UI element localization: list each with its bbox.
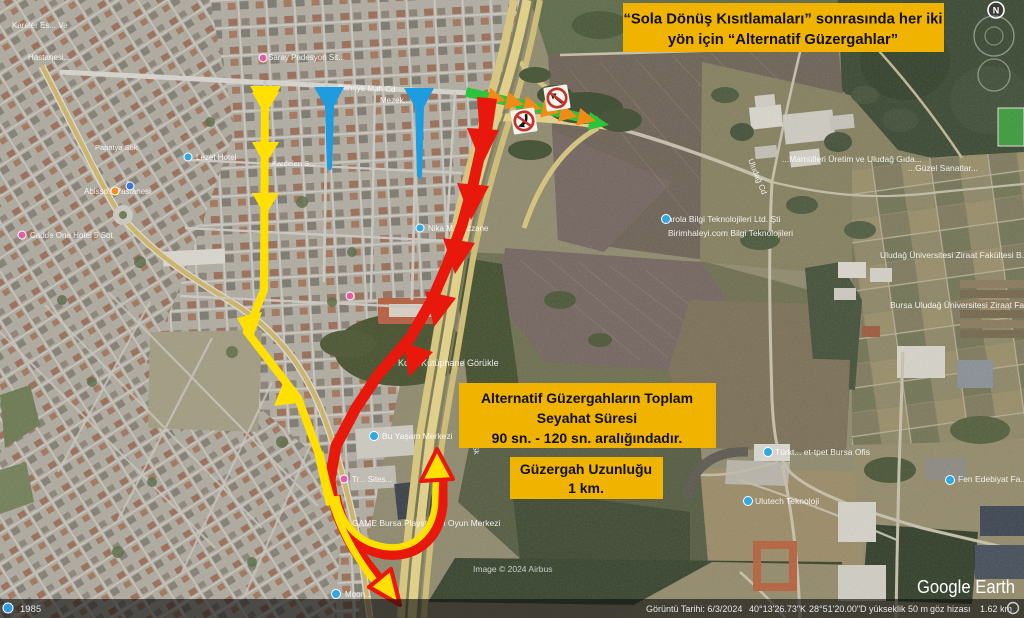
svg-text:Türkt... et-tpet Bursa Ofis: Türkt... et-tpet Bursa Ofis <box>775 447 870 457</box>
svg-text:Fen Edebiyat Fa...: Fen Edebiyat Fa... <box>958 474 1024 484</box>
svg-text:Mezek...: Mezek... <box>380 96 410 105</box>
svg-text:Lezet Hotel: Lezet Hotel <box>196 153 237 162</box>
svg-text:Hastanesi...: Hastanesi... <box>28 53 70 62</box>
svg-text:50 m: 50 m <box>908 604 928 614</box>
svg-text:...Güzel Sanatlar...: ...Güzel Sanatlar... <box>908 163 978 173</box>
svg-text:Google Earth: Google Earth <box>917 576 1015 597</box>
svg-text:yükseklik: yükseklik <box>869 604 906 614</box>
svg-text:1985: 1985 <box>20 604 41 615</box>
svg-text:“Sola Dönüş Kısıtlamaları” son: “Sola Dönüş Kısıtlamaları” sonrasında he… <box>623 12 942 28</box>
svg-text:Bu Yaşam Merkezi: Bu Yaşam Merkezi <box>382 431 453 441</box>
svg-text:Moon...: Moon... <box>345 590 372 599</box>
svg-text:Image © 2024 Airbus: Image © 2024 Airbus <box>473 564 553 574</box>
svg-text:Alternatif Güzergahların Topla: Alternatif Güzergahların Toplam <box>481 390 693 406</box>
svg-text:Saray Padesyon Sit...: Saray Padesyon Sit... <box>268 53 345 62</box>
svg-text:göz hizası: göz hizası <box>930 604 971 614</box>
svg-text:Görüntü Tarihi: 6/3/2024: Görüntü Tarihi: 6/3/2024 <box>646 604 742 614</box>
svg-text:28°51'20.00"D: 28°51'20.00"D <box>809 604 867 614</box>
svg-text:Birimhaleyi.com Bilgi Teknoloj: Birimhaleyi.com Bilgi Teknolojileri <box>668 228 793 238</box>
svg-text:Güzergah Uzunluğu: Güzergah Uzunluğu <box>520 461 652 477</box>
svg-text:Tr... Sites...: Tr... Sites... <box>352 475 392 484</box>
svg-text:Seyahat Süresi: Seyahat Süresi <box>537 410 637 426</box>
svg-text:...Mamülleri Üretim ve Uludağ: ...Mamülleri Üretim ve Uludağ Gıda... <box>782 154 922 164</box>
svg-text:Ulutech Teknoloji: Ulutech Teknoloji <box>755 496 819 506</box>
svg-text:1 km.: 1 km. <box>568 480 604 496</box>
svg-text:Kareler Es... Ve: Kareler Es... Ve <box>12 21 68 30</box>
svg-text:Cadde One Hotel 5 Sot: Cadde One Hotel 5 Sot <box>30 231 113 240</box>
svg-text:Uludağ Üniversitesi Ziraat Fak: Uludağ Üniversitesi Ziraat Fakültesi B..… <box>880 250 1024 260</box>
svg-text:90 sn. - 120 sn. aralığındadır: 90 sn. - 120 sn. aralığındadır. <box>492 430 683 446</box>
svg-text:yön için “Alternatif Güzergahl: yön için “Alternatif Güzergahlar” <box>668 32 898 48</box>
svg-text:Bursa Uludağ Üniversitesi Zira: Bursa Uludağ Üniversitesi Ziraat Fa... <box>890 300 1024 310</box>
svg-text:N: N <box>993 6 1000 16</box>
svg-text:Papatya Sok: Papatya Sok <box>95 143 138 152</box>
svg-text:40°13'26.73"K: 40°13'26.73"K <box>749 604 806 614</box>
svg-text:Kardelen S...: Kardelen S... <box>272 159 315 168</box>
svg-text:Parola Bilgi Teknolojileri Ltd: Parola Bilgi Teknolojileri Ltd. Şti <box>662 214 781 224</box>
